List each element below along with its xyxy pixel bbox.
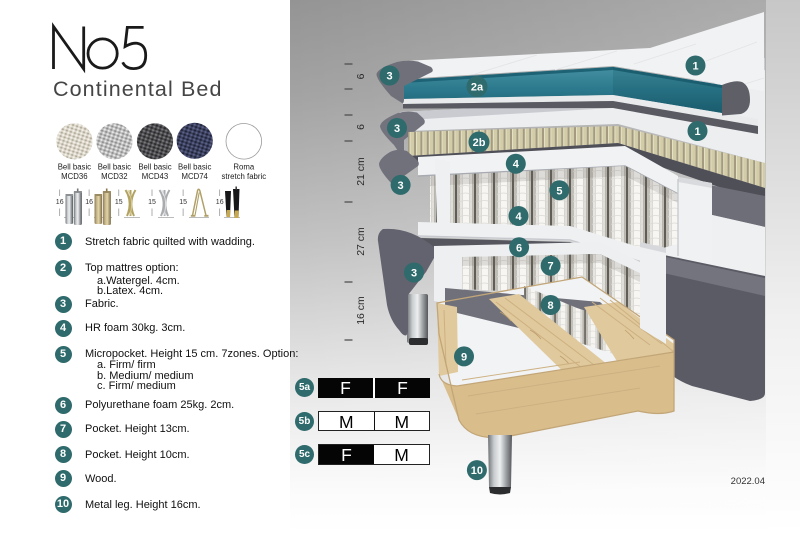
svg-text:Roma: Roma <box>233 163 254 172</box>
svg-text:5: 5 <box>556 185 562 197</box>
svg-text:stretch fabric: stretch fabric <box>221 172 266 181</box>
svg-text:3: 3 <box>386 71 392 83</box>
svg-text:MCD36: MCD36 <box>61 172 87 181</box>
svg-text:Bell basic: Bell basic <box>138 163 171 172</box>
svg-text:MCD74: MCD74 <box>181 172 208 181</box>
svg-text:16 cm: 16 cm <box>355 296 367 325</box>
svg-text:2b: 2b <box>473 137 486 149</box>
svg-text:10: 10 <box>471 465 483 477</box>
svg-text:6: 6 <box>355 124 367 130</box>
svg-text:MCD43: MCD43 <box>142 172 168 181</box>
svg-text:15: 15 <box>148 199 156 206</box>
svg-text:15: 15 <box>115 199 123 206</box>
svg-text:4: 4 <box>515 211 522 223</box>
svg-text:3: 3 <box>398 180 404 192</box>
svg-text:8: 8 <box>548 300 554 312</box>
svg-text:1: 1 <box>694 126 700 138</box>
svg-text:6: 6 <box>355 73 367 79</box>
svg-text:16: 16 <box>216 199 224 206</box>
svg-text:27 cm: 27 cm <box>355 227 367 256</box>
svg-text:15: 15 <box>179 199 187 206</box>
svg-text:Bell basic: Bell basic <box>178 163 211 172</box>
svg-text:9: 9 <box>461 351 467 363</box>
svg-text:2a: 2a <box>471 82 484 94</box>
svg-text:MCD32: MCD32 <box>101 172 127 181</box>
svg-text:Bell basic: Bell basic <box>58 163 91 172</box>
svg-text:21 cm: 21 cm <box>355 157 367 186</box>
svg-text:16: 16 <box>85 199 93 206</box>
svg-text:6: 6 <box>516 242 522 254</box>
svg-text:3: 3 <box>394 123 400 135</box>
svg-text:16: 16 <box>56 199 64 206</box>
svg-text:4: 4 <box>513 159 520 171</box>
svg-text:Bell basic: Bell basic <box>98 163 131 172</box>
svg-text:7: 7 <box>548 261 554 273</box>
svg-text:1: 1 <box>692 61 698 73</box>
svg-text:3: 3 <box>411 268 417 280</box>
